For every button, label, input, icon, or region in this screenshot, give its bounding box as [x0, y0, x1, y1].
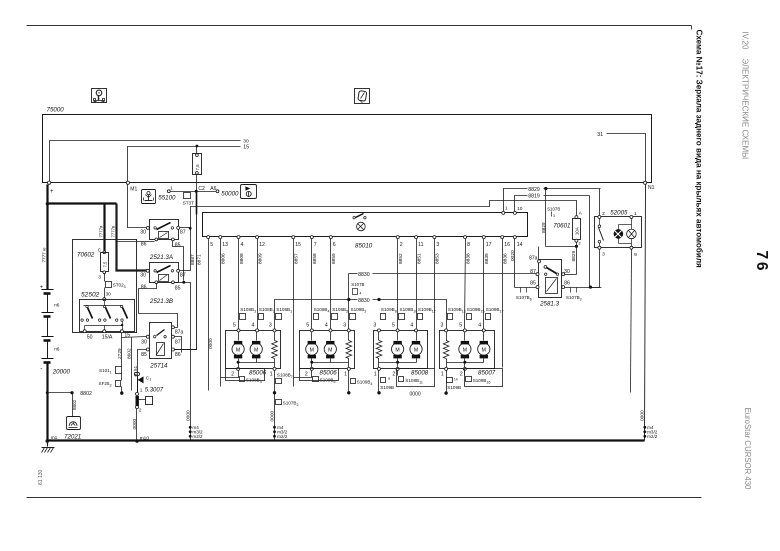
svg-text:m2/2: m2/2 [192, 434, 203, 439]
svg-text:87: 87 [530, 269, 536, 275]
svg-text:2: 2 [400, 242, 403, 248]
svg-text:87: 87 [180, 230, 186, 236]
svg-text:75000: 75000 [47, 107, 65, 114]
svg-text:7777 ю: 7777 ю [42, 247, 47, 262]
svg-text:10A: 10A [575, 227, 580, 235]
svg-text:17: 17 [486, 242, 492, 248]
svg-text:+: + [40, 285, 43, 291]
svg-text:55100: 55100 [158, 195, 176, 202]
svg-text:4: 4 [252, 323, 255, 329]
svg-text:7: 7 [314, 242, 317, 248]
svg-text:M: M [254, 347, 258, 353]
svg-text:3: 3 [441, 323, 444, 329]
svg-text:85007: 85007 [478, 370, 496, 377]
svg-text:16: 16 [504, 242, 510, 248]
svg-text:72021: 72021 [64, 433, 81, 440]
svg-text:9: 9 [388, 377, 390, 381]
svg-text:50: 50 [87, 335, 93, 341]
svg-text:8829: 8829 [528, 187, 540, 193]
svg-text:4: 4 [241, 242, 244, 248]
svg-text:9: 9 [634, 252, 637, 258]
svg-text:52502: 52502 [81, 292, 100, 299]
svg-text:M: M [328, 347, 332, 353]
svg-text:S107B: S107B [547, 207, 560, 212]
svg-text:S108B5: S108B5 [332, 307, 348, 313]
svg-text:1: 1 [140, 387, 143, 392]
svg-text:6: 6 [333, 242, 336, 248]
svg-text:8851: 8851 [416, 253, 422, 264]
svg-text:14: 14 [454, 377, 458, 381]
svg-text:S109B12: S109B12 [418, 307, 436, 313]
svg-text:85008: 85008 [411, 370, 429, 377]
svg-text:S108B3: S108B3 [240, 307, 256, 313]
svg-text:-: - [40, 366, 42, 373]
svg-text:76: 76 [753, 251, 770, 274]
svg-text:8859: 8859 [331, 253, 337, 264]
svg-text:15: 15 [124, 333, 130, 339]
svg-text:N1: N1 [648, 185, 655, 191]
svg-text:M: M [414, 347, 418, 353]
svg-text:85006: 85006 [320, 370, 338, 377]
svg-text:S108B4: S108B4 [246, 378, 262, 384]
svg-text:S109B17: S109B17 [486, 307, 504, 313]
svg-text:4: 4 [478, 323, 481, 329]
svg-text:m2/2: m2/2 [647, 434, 658, 439]
svg-text:5.3007: 5.3007 [145, 388, 164, 394]
svg-text:20000: 20000 [52, 368, 71, 375]
svg-text:S109B: S109B [380, 385, 394, 390]
svg-text:85: 85 [175, 243, 181, 249]
svg-text:3: 3 [553, 214, 555, 218]
svg-text:5: 5 [459, 323, 462, 329]
svg-text:0000: 0000 [640, 410, 646, 421]
svg-text:S108B1: S108B1 [276, 307, 292, 313]
svg-text:8602: 8602 [127, 348, 133, 359]
svg-text:8836: 8836 [503, 253, 509, 264]
svg-text:EuroStar CURSOR 430: EuroStar CURSOR 430 [743, 408, 752, 491]
svg-text:0000: 0000 [132, 418, 138, 429]
svg-text:8806: 8806 [221, 253, 227, 264]
svg-text:C2: C2 [198, 186, 205, 192]
svg-text:8839: 8839 [484, 253, 490, 264]
svg-text:87a: 87a [529, 256, 538, 262]
svg-text:S107B: S107B [351, 282, 364, 287]
svg-text:30: 30 [106, 292, 112, 298]
svg-text:0151: 0151 [133, 365, 139, 376]
svg-text:2: 2 [392, 372, 395, 378]
svg-text:70601: 70601 [553, 223, 570, 230]
svg-text:8808: 8808 [239, 253, 245, 264]
svg-text:86: 86 [564, 281, 570, 287]
svg-text:10: 10 [517, 206, 523, 212]
svg-text:2: 2 [305, 372, 308, 378]
svg-text:S107B2: S107B2 [283, 401, 299, 407]
svg-text:S107B2: S107B2 [566, 295, 582, 301]
svg-text:M1: M1 [130, 187, 137, 193]
svg-text:0000: 0000 [410, 391, 421, 397]
svg-text:7,5: 7,5 [195, 164, 200, 171]
svg-text:8829: 8829 [541, 222, 547, 233]
svg-text:8830: 8830 [358, 272, 370, 278]
svg-text:0000: 0000 [208, 338, 214, 349]
svg-text:0000: 0000 [269, 410, 275, 421]
svg-text:Схема №17: Зеркала заднего вид: Схема №17: Зеркала заднего вида на крыль… [695, 30, 704, 268]
svg-text:3: 3 [578, 242, 580, 246]
svg-text:8829: 8829 [571, 250, 577, 261]
svg-text:A6: A6 [210, 186, 216, 192]
svg-text:S107B6: S107B6 [516, 295, 532, 301]
svg-text:S109B10: S109B10 [400, 307, 418, 313]
svg-text:11: 11 [418, 242, 423, 248]
svg-text:85: 85 [175, 286, 181, 292]
svg-text:50000: 50000 [221, 190, 239, 197]
svg-text:70602: 70602 [77, 252, 95, 259]
svg-text:8853: 8853 [435, 253, 441, 264]
svg-text:2521.3A: 2521.3A [149, 254, 173, 261]
svg-text:85010: 85010 [355, 242, 373, 249]
svg-text:15: 15 [243, 144, 249, 150]
svg-text:1: 1 [634, 211, 637, 217]
svg-text:1: 1 [344, 372, 347, 378]
svg-text:4: 4 [360, 291, 362, 295]
svg-text:87: 87 [180, 272, 186, 278]
svg-text:3: 3 [269, 323, 272, 329]
svg-text:S1011: S1011 [99, 368, 112, 374]
svg-text:8838: 8838 [465, 253, 471, 264]
svg-text:87: 87 [175, 339, 181, 345]
svg-text:2: 2 [602, 211, 605, 217]
svg-text:13: 13 [222, 242, 228, 248]
svg-text:87a: 87a [175, 330, 184, 336]
svg-text:S109B13: S109B13 [448, 307, 466, 313]
svg-text:C: C [98, 247, 102, 252]
svg-text:1: 1 [441, 372, 444, 378]
svg-text:S109B15: S109B15 [467, 307, 485, 313]
svg-text:15: 15 [295, 242, 301, 248]
svg-text:7,5: 7,5 [102, 261, 107, 267]
svg-text:8802: 8802 [80, 391, 92, 397]
svg-text:30: 30 [564, 269, 570, 275]
svg-text:5: 5 [306, 323, 309, 329]
svg-text:25714: 25714 [149, 362, 168, 369]
svg-text:4: 4 [325, 323, 328, 329]
svg-text:1: 1 [374, 372, 377, 378]
svg-text:S108B7: S108B7 [277, 373, 293, 379]
svg-text:85: 85 [530, 281, 536, 287]
svg-text:52005: 52005 [610, 209, 628, 216]
svg-text:86: 86 [141, 242, 147, 248]
svg-text:3: 3 [602, 252, 605, 258]
svg-text:2729: 2729 [117, 348, 123, 359]
svg-text:8871: 8871 [196, 254, 202, 265]
svg-text:8830: 8830 [358, 298, 370, 304]
svg-text:7777я: 7777я [99, 225, 104, 238]
svg-text:S108B2: S108B2 [259, 307, 275, 313]
svg-text:S109B3: S109B3 [351, 307, 367, 313]
svg-text:M: M [482, 347, 486, 353]
svg-text:86: 86 [141, 285, 147, 291]
svg-text:п6: п6 [54, 303, 60, 309]
svg-text:8857: 8857 [294, 253, 300, 264]
svg-text:2581.3: 2581.3 [539, 301, 559, 308]
svg-text:5: 5 [392, 323, 395, 329]
svg-text:ST023: ST023 [113, 283, 126, 289]
svg-text:2: 2 [231, 372, 234, 378]
svg-text:8: 8 [467, 242, 470, 248]
svg-text:7777в: 7777в [110, 225, 115, 238]
svg-text:30: 30 [140, 230, 146, 236]
svg-text:15/A: 15/A [102, 335, 113, 341]
svg-text:2: 2 [460, 372, 463, 378]
svg-text:2521.3B: 2521.3B [149, 298, 173, 305]
svg-text:1: 1 [505, 206, 508, 212]
svg-text:1: 1 [270, 372, 273, 378]
svg-text:8852: 8852 [398, 253, 404, 264]
svg-text:S109B: S109B [447, 385, 461, 390]
svg-text:85: 85 [141, 352, 147, 358]
svg-text:3: 3 [373, 323, 376, 329]
svg-text:3: 3 [98, 275, 101, 281]
svg-text:8819: 8819 [528, 194, 540, 200]
svg-text:S109B4: S109B4 [357, 380, 373, 386]
svg-text:S109B6: S109B6 [320, 378, 336, 384]
svg-text:86: 86 [175, 352, 181, 358]
svg-text:8887: 8887 [190, 254, 196, 265]
svg-text:2: 2 [139, 408, 142, 413]
svg-text:ST3T: ST3T [183, 201, 194, 206]
svg-text:A: A [579, 211, 583, 216]
svg-text:m2/2: m2/2 [277, 434, 288, 439]
svg-text:8802: 8802 [72, 399, 77, 410]
svg-text:S109B16: S109B16 [473, 378, 491, 384]
svg-text:M: M [310, 347, 314, 353]
svg-text:61 130: 61 130 [38, 469, 44, 485]
svg-text:3: 3 [343, 323, 346, 329]
svg-text:S109B8: S109B8 [381, 307, 397, 313]
svg-text:M: M [236, 347, 240, 353]
svg-text:SF253: SF253 [99, 381, 112, 387]
svg-text:12: 12 [259, 242, 265, 248]
svg-text:8809: 8809 [257, 253, 263, 264]
svg-text:3: 3 [436, 242, 439, 248]
svg-text:4: 4 [410, 323, 413, 329]
svg-text:M: M [395, 347, 399, 353]
svg-text:30: 30 [140, 272, 146, 278]
svg-text:31: 31 [597, 132, 603, 138]
svg-text:S108B11: S108B11 [405, 378, 423, 384]
svg-text:30: 30 [141, 339, 147, 345]
svg-text:IV.20 ЭЛЕКТРИЧЕСКИЕ СХЕМЫ: IV.20 ЭЛЕКТРИЧЕСКИЕ СХЕМЫ [741, 32, 750, 160]
svg-text:п6: п6 [54, 347, 60, 353]
svg-text:5: 5 [210, 242, 213, 248]
svg-text:0000: 0000 [185, 410, 191, 421]
svg-text:14: 14 [517, 242, 523, 248]
svg-text:M: M [463, 347, 467, 353]
svg-text:0020: 0020 [510, 250, 516, 261]
svg-text:8858: 8858 [312, 253, 318, 264]
svg-text:+: + [50, 189, 54, 195]
svg-text:S109B4: S109B4 [314, 307, 330, 313]
svg-text:5: 5 [233, 323, 236, 329]
svg-text:1: 1 [150, 378, 152, 382]
